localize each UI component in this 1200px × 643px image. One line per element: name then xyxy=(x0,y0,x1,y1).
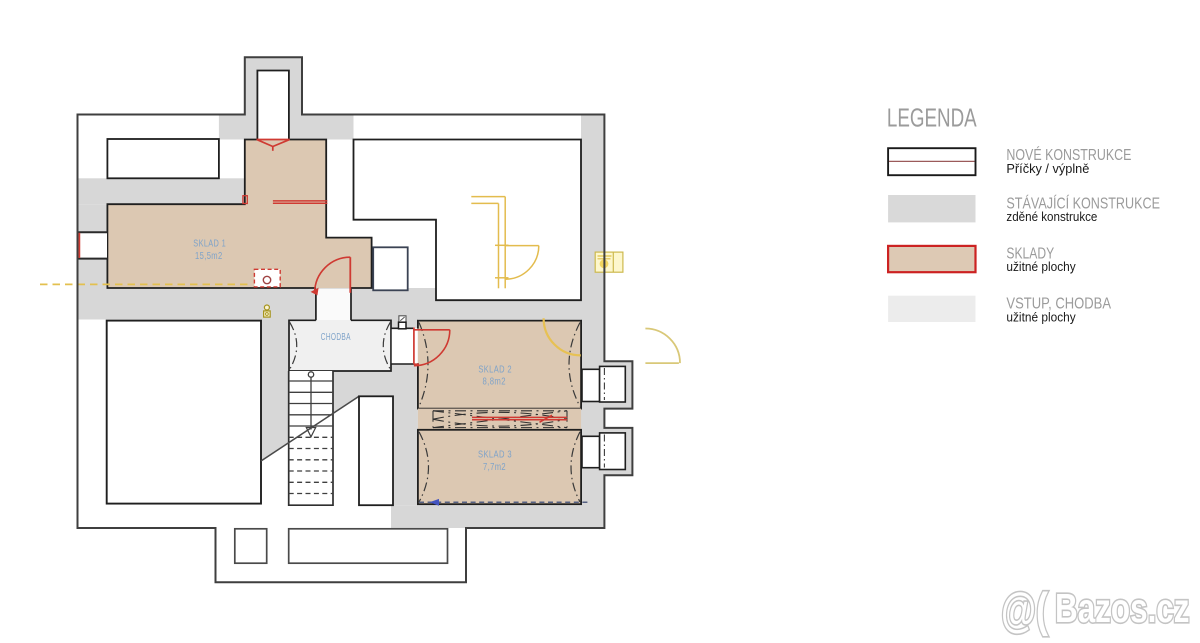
svg-text:LEGENDA: LEGENDA xyxy=(887,102,977,132)
svg-text:15,5m2: 15,5m2 xyxy=(195,251,223,262)
svg-text:SKLAD 2: SKLAD 2 xyxy=(478,364,512,375)
svg-text:SKLAD 3: SKLAD 3 xyxy=(478,449,512,460)
svg-text:7,7m2: 7,7m2 xyxy=(483,462,506,473)
svg-text:užitné plochy: užitné plochy xyxy=(1006,309,1076,324)
svg-text:CHODBA: CHODBA xyxy=(321,332,351,343)
svg-text:Bazos.cz: Bazos.cz xyxy=(1055,585,1190,631)
svg-text:Příčky / výplně: Příčky / výplně xyxy=(1006,161,1089,176)
svg-text:@(: @( xyxy=(1001,583,1048,636)
svg-text:8,8m2: 8,8m2 xyxy=(483,377,506,388)
svg-text:zděné konstrukce: zděné konstrukce xyxy=(1006,209,1097,224)
svg-text:SKLAD 1: SKLAD 1 xyxy=(193,239,226,250)
svg-text:užitné plochy: užitné plochy xyxy=(1006,259,1076,274)
